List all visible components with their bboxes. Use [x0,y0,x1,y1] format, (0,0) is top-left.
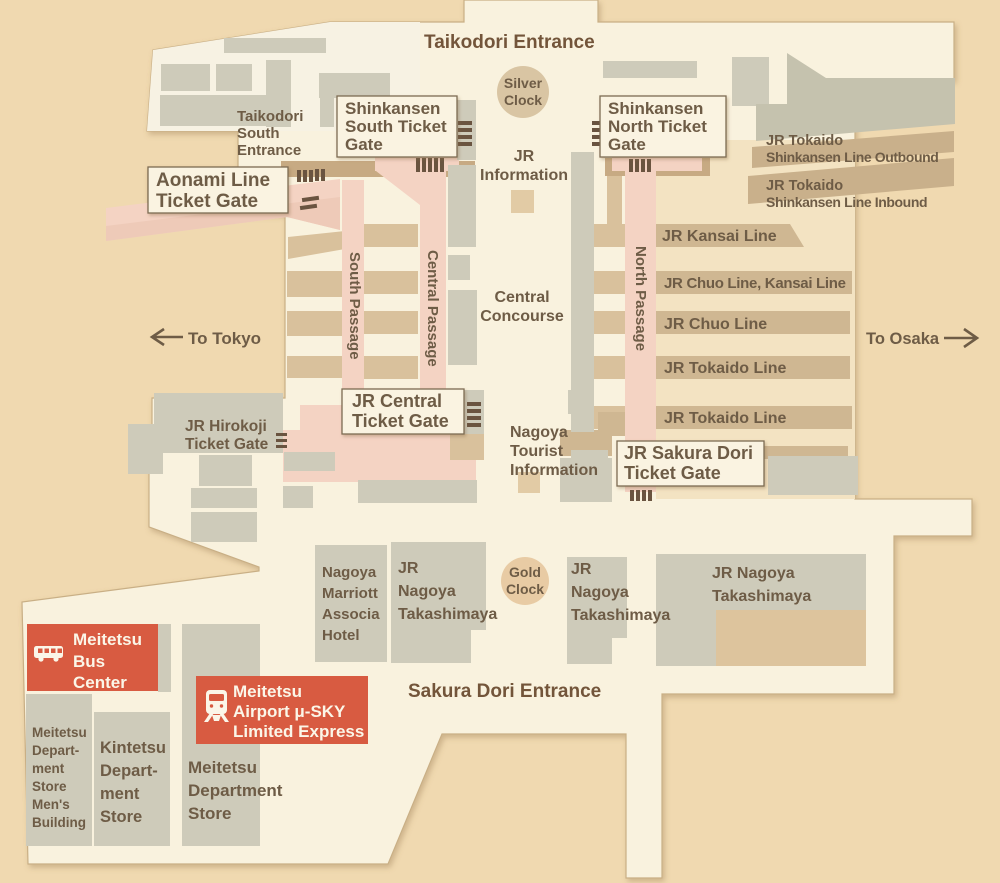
svg-text:Taikodori: Taikodori [237,108,303,125]
svg-text:JR Tokaido: JR Tokaido [766,133,843,149]
svg-text:Ticket Gate: Ticket Gate [156,191,258,212]
svg-text:Meitetsu: Meitetsu [188,758,257,777]
svg-text:Associa: Associa [322,606,380,623]
svg-text:Takashimaya: Takashimaya [712,588,811,605]
svg-text:Center: Center [73,673,127,692]
svg-text:JR Tokaido Line: JR Tokaido Line [664,410,786,427]
svg-text:Nagoya: Nagoya [571,584,629,601]
svg-text:Entrance: Entrance [237,142,301,159]
svg-text:Hotel: Hotel [322,627,360,644]
svg-text:JR Hirokoji: JR Hirokoji [185,418,267,435]
svg-text:Aonami Line: Aonami Line [156,170,270,191]
svg-text:Silver: Silver [504,75,543,91]
svg-text:Meitetsu: Meitetsu [32,725,87,740]
svg-text:Takashimaya: Takashimaya [571,607,670,624]
svg-text:JR: JR [514,148,535,165]
svg-text:Kintetsu: Kintetsu [100,739,166,757]
svg-text:North Passage: North Passage [632,246,649,351]
svg-text:JR: JR [398,560,419,577]
svg-text:Shinkansen: Shinkansen [608,99,703,118]
svg-text:Meitetsu: Meitetsu [73,630,142,649]
svg-text:JR Kansai Line: JR Kansai Line [662,228,777,245]
svg-text:Men's: Men's [32,797,70,812]
svg-text:JR Central: JR Central [352,391,442,411]
svg-text:Gold: Gold [509,564,541,580]
svg-text:Store: Store [188,804,231,823]
svg-text:South: South [237,125,280,142]
svg-text:JR Sakura Dori: JR Sakura Dori [624,443,753,463]
svg-text:Central: Central [494,289,549,306]
svg-text:Concourse: Concourse [480,308,564,325]
svg-text:Marriott: Marriott [322,585,378,602]
svg-text:Information: Information [510,462,598,479]
svg-text:Meitetsu: Meitetsu [233,682,302,701]
svg-text:Clock: Clock [506,581,544,597]
svg-text:Nagoya: Nagoya [398,583,456,600]
svg-text:Nagoya: Nagoya [510,424,568,441]
svg-text:North Ticket: North Ticket [608,117,707,136]
svg-text:ment: ment [100,785,140,803]
svg-text:Depart-: Depart- [32,743,79,758]
svg-text:Limited Express: Limited Express [233,722,364,741]
svg-text:Store: Store [100,808,142,826]
svg-text:Central Passage: Central Passage [424,250,441,367]
svg-text:Shinkansen Line Outbound: Shinkansen Line Outbound [766,149,938,165]
svg-text:Ticket Gate: Ticket Gate [624,463,721,483]
svg-text:JR: JR [571,561,592,578]
svg-text:Store: Store [32,779,67,794]
svg-text:ment: ment [32,761,65,776]
svg-text:Shinkansen: Shinkansen [345,99,440,118]
svg-text:JR Nagoya: JR Nagoya [712,565,795,582]
svg-text:Department: Department [188,781,283,800]
svg-text:JR Tokaido: JR Tokaido [766,178,843,194]
svg-text:JR Tokaido Line: JR Tokaido Line [664,360,786,377]
svg-text:JR Chuo Line: JR Chuo Line [664,316,767,333]
svg-text:Takashimaya: Takashimaya [398,606,497,623]
svg-text:Ticket Gate: Ticket Gate [185,436,269,453]
svg-text:To Osaka: To Osaka [866,330,940,348]
svg-text:South Ticket: South Ticket [345,117,447,136]
svg-text:Taikodori Entrance: Taikodori Entrance [424,32,595,53]
svg-text:JR Chuo Line, Kansai Line: JR Chuo Line, Kansai Line [664,275,846,292]
svg-text:Clock: Clock [504,92,542,108]
svg-text:Tourist: Tourist [510,443,564,460]
svg-text:Nagoya: Nagoya [322,564,377,581]
svg-text:Shinkansen Line Inbound: Shinkansen Line Inbound [766,194,927,210]
svg-text:South Passage: South Passage [346,252,363,360]
svg-text:Depart-: Depart- [100,762,158,780]
svg-text:Airport μ-SKY: Airport μ-SKY [233,702,346,721]
svg-text:Building: Building [32,815,86,830]
svg-text:Gate: Gate [608,135,646,154]
svg-text:To Tokyo: To Tokyo [188,329,261,348]
svg-text:Bus: Bus [73,652,105,671]
svg-text:Information: Information [480,167,568,184]
svg-text:Sakura Dori Entrance: Sakura Dori Entrance [408,681,601,702]
svg-text:Gate: Gate [345,135,383,154]
svg-text:Ticket Gate: Ticket Gate [352,411,449,431]
